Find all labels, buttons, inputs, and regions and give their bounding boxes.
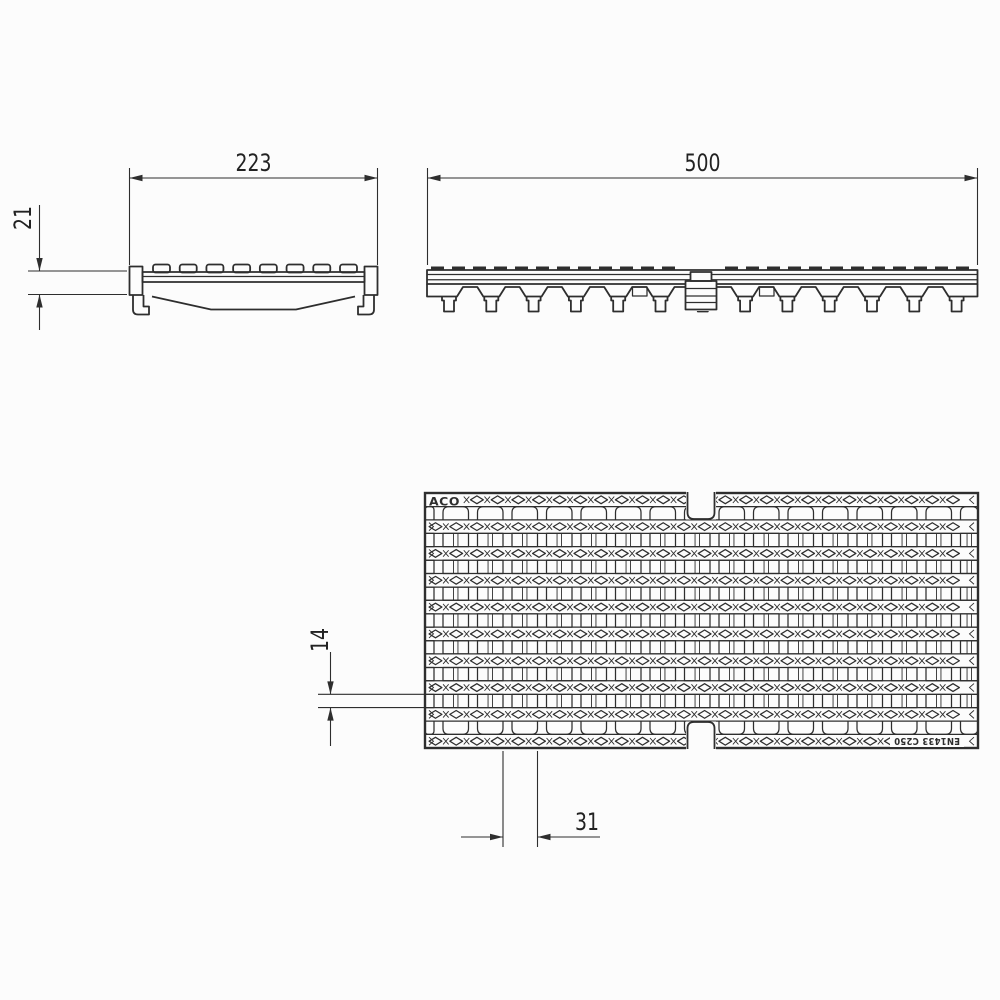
plan-view [425, 491, 978, 750]
technical-drawing-page: 223 500 21 14 31 ACO EN1433 C250 [0, 0, 1000, 1000]
dim-edge-height: 21 [9, 206, 37, 230]
dim-slot-pitch: 31 [575, 808, 599, 836]
brand-label: ACO [429, 495, 460, 509]
dim-slot-width: 14 [306, 628, 334, 652]
side-elevation-view [427, 267, 978, 312]
cross-section-view [130, 265, 378, 315]
dim-length: 500 [685, 149, 721, 177]
standard-label: EN1433 C250 [894, 735, 960, 746]
technical-drawing-canvas: 223 500 21 14 31 ACO EN1433 C250 [0, 0, 1000, 1000]
dim-section-width: 223 [236, 149, 272, 177]
